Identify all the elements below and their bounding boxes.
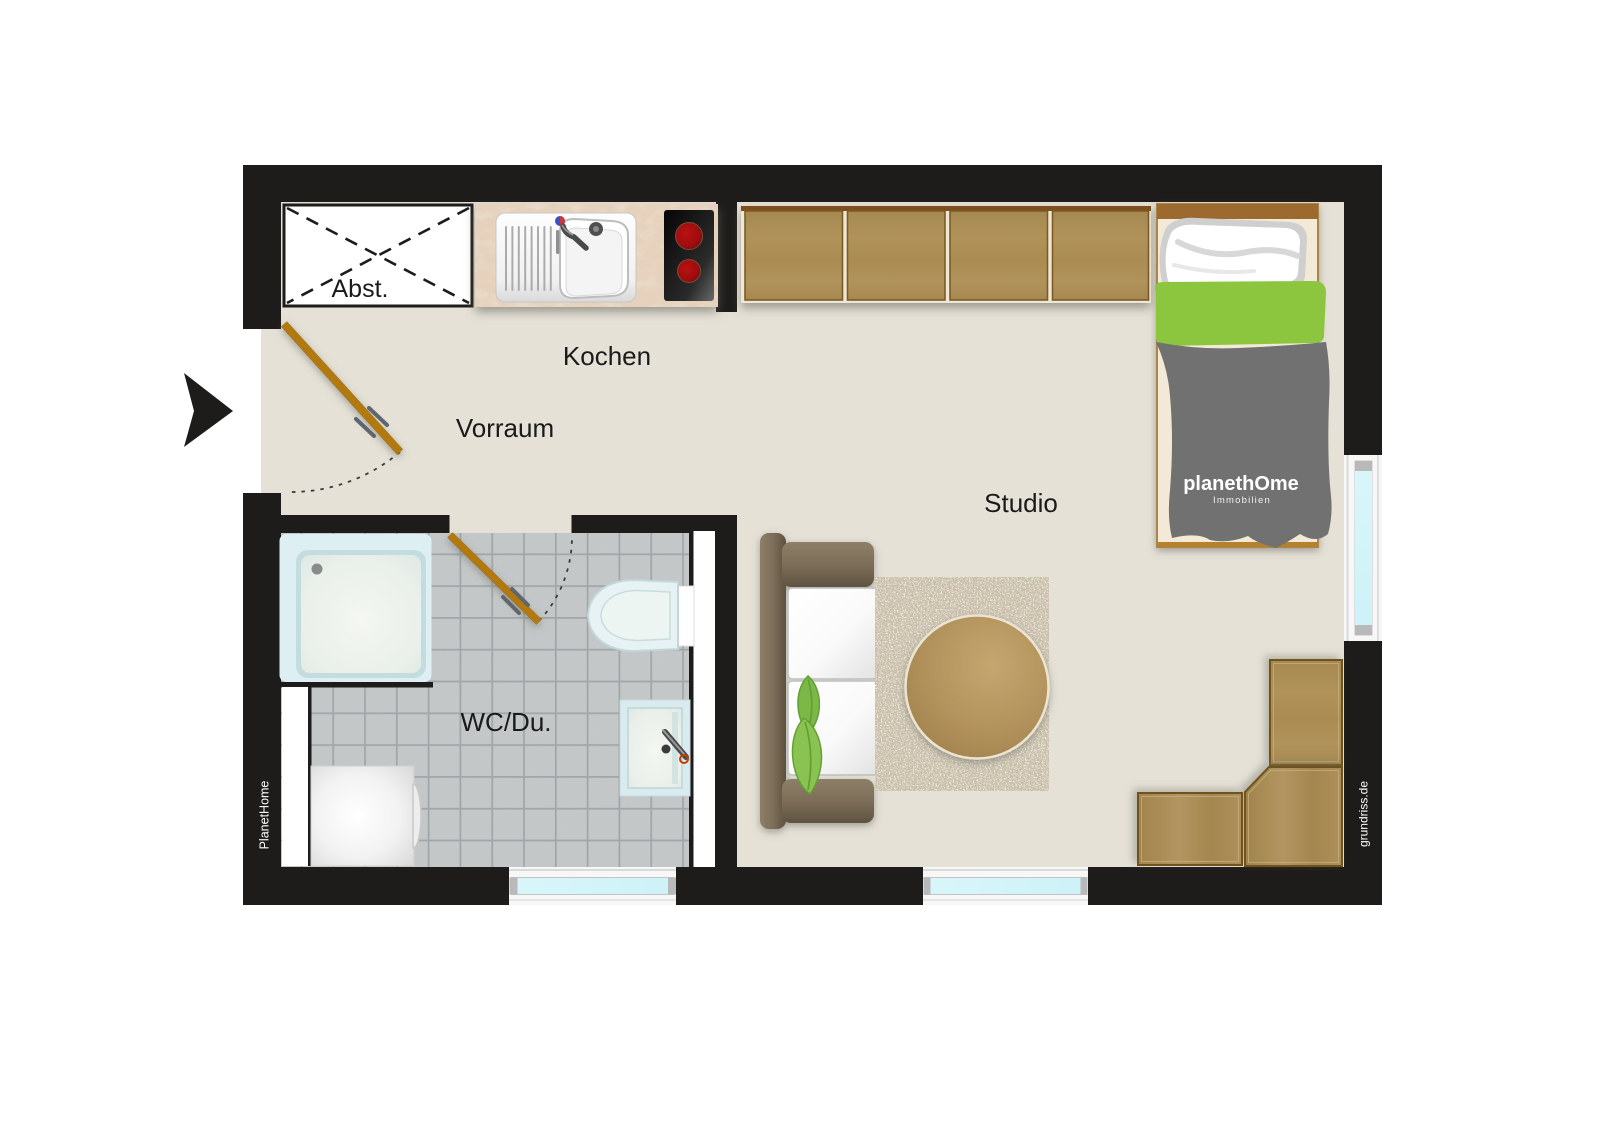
svg-text:planethOme: planethOme: [1183, 473, 1299, 495]
svg-text:Immobilien: Immobilien: [1213, 495, 1271, 506]
svg-text:Kochen: Kochen: [563, 341, 651, 371]
svg-text:Abst.: Abst.: [332, 275, 389, 303]
svg-text:WC/Du.: WC/Du.: [461, 707, 552, 737]
svg-text:Studio: Studio: [984, 488, 1058, 518]
svg-text:PlanetHome: PlanetHome: [258, 781, 272, 850]
svg-text:grundriss.de: grundriss.de: [1356, 781, 1370, 847]
svg-text:Vorraum: Vorraum: [456, 413, 554, 443]
